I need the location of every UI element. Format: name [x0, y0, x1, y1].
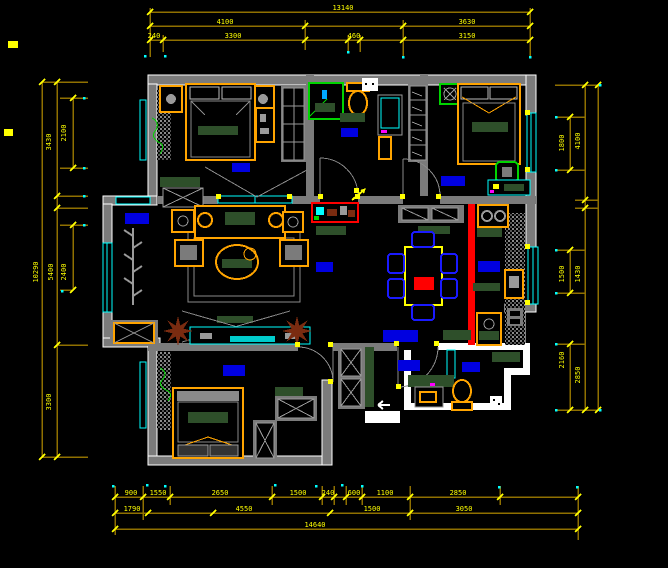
- dining-chair[interactable]: [388, 279, 404, 298]
- room-label-block[interactable]: [398, 360, 420, 371]
- dimension-endpoint-dot: [83, 195, 86, 198]
- dimension-text: 2850: [450, 489, 467, 497]
- pillow: [190, 87, 219, 99]
- dimension-endpoint-dot: [555, 343, 558, 346]
- vanity-cabinet[interactable]: [379, 137, 391, 159]
- dimension-text: 1800: [558, 135, 566, 152]
- vent-block: [362, 78, 378, 91]
- pillow: [490, 87, 517, 99]
- dimension-endpoint-dot: [83, 224, 86, 227]
- bed-runner: [198, 126, 238, 135]
- window-bathroom2[interactable]: [447, 350, 455, 378]
- side-table-left[interactable]: [172, 210, 194, 232]
- dimension-text: 1790: [124, 505, 141, 513]
- dining-chair[interactable]: [388, 254, 404, 273]
- toilet-bowl[interactable]: [349, 91, 367, 115]
- shower-enclosure[interactable]: [309, 83, 343, 119]
- floor-plan-drawing: 1314041003630240330046031509001550265015…: [0, 0, 668, 568]
- door-hinge-mark: [525, 244, 530, 249]
- headboard: [177, 391, 239, 401]
- window-living-top[interactable]: [116, 197, 150, 204]
- door-hinge-mark: [295, 342, 300, 347]
- dimension-text: 3430: [45, 134, 53, 151]
- dimension-text: 4100: [217, 18, 234, 26]
- door-hinge-mark: [394, 341, 399, 346]
- dimension-text: 3300: [45, 394, 53, 411]
- dimension-endpoint-dot: [599, 84, 602, 87]
- room-label-block[interactable]: [383, 330, 418, 342]
- door-hinge-mark: [396, 384, 401, 389]
- room-label-block[interactable]: [316, 262, 333, 272]
- door-hinge-mark: [525, 300, 530, 305]
- margin-mark: [4, 129, 13, 136]
- dimension-endpoint-dot: [599, 409, 602, 412]
- dimension-endpoint-dot: [576, 486, 579, 489]
- dimension-text: 4100: [574, 133, 582, 150]
- dimension-endpoint-dot: [347, 51, 350, 54]
- dimension-text: 4550: [236, 505, 253, 513]
- dimension-text: 900: [125, 489, 138, 497]
- room-label-block[interactable]: [478, 261, 500, 272]
- dimension-endpoint-dot: [555, 249, 558, 252]
- dimension-text: 3050: [456, 505, 473, 513]
- dimension-text: 13140: [332, 4, 353, 12]
- potted-plant-right[interactable]: [282, 316, 312, 346]
- dimension-text: 240: [148, 32, 161, 40]
- dimension-text: 1550: [150, 489, 167, 497]
- dining-chair[interactable]: [412, 305, 434, 320]
- door-hinge-mark: [436, 194, 441, 199]
- footboard-drawer[interactable]: [210, 445, 238, 456]
- dimension-endpoint-dot: [83, 167, 86, 170]
- margin-mark: [8, 41, 18, 48]
- wall-left-bedroom3[interactable]: [148, 345, 157, 465]
- room-label-block[interactable]: [341, 128, 358, 137]
- kitchen-red-partition[interactable]: [468, 204, 475, 345]
- dimension-text: 460: [348, 32, 361, 40]
- door-hinge-mark: [525, 167, 530, 172]
- room-label-block[interactable]: [232, 163, 250, 172]
- bath-mat: [340, 113, 365, 122]
- dimension-text: 2650: [212, 489, 229, 497]
- pillow: [461, 87, 488, 99]
- console-top: [160, 177, 200, 187]
- television[interactable]: [230, 336, 275, 342]
- dimension-text: 2850: [574, 367, 582, 384]
- dimension-text: 240: [322, 489, 335, 497]
- dimension-text: 2400: [60, 264, 68, 281]
- door-hinge-mark: [328, 342, 333, 347]
- door-hinge-mark: [287, 194, 292, 199]
- dimension-text: 600: [348, 489, 361, 497]
- dimension-endpoint-dot: [315, 485, 318, 488]
- potted-plant-left[interactable]: [163, 316, 193, 346]
- dimension-endpoint-dot: [164, 485, 167, 488]
- dimension-endpoint-dot: [164, 55, 167, 58]
- dimension-text: 1500: [290, 489, 307, 497]
- shoe-cabinet-top: [365, 347, 374, 407]
- dimension-endpoint-dot: [555, 409, 558, 412]
- toilet-bowl[interactable]: [453, 380, 471, 402]
- table-centerpiece: [414, 277, 434, 290]
- dimension-text: 3630: [459, 18, 476, 26]
- passage-counter: [443, 330, 471, 340]
- dimension-text: 14640: [304, 521, 325, 529]
- dimension-endpoint-dot: [555, 116, 558, 119]
- tv-rug: [217, 316, 253, 323]
- cad-viewport[interactable]: 1314041003630240330046031509001550265015…: [0, 0, 668, 568]
- dimension-endpoint-dot: [146, 484, 149, 487]
- dimension-text: 1430: [574, 266, 582, 283]
- dimension-text: 1100: [377, 489, 394, 497]
- dimension-text: 10290: [32, 261, 40, 282]
- dimension-endpoint-dot: [274, 484, 277, 487]
- counter-green: [492, 352, 520, 362]
- dimension-endpoint-dot: [83, 97, 86, 100]
- window-bedroom1[interactable]: [140, 100, 146, 160]
- wall-living-left-a[interactable]: [103, 204, 112, 248]
- dimension-text: 5400: [47, 264, 55, 281]
- toilet-tank[interactable]: [452, 402, 472, 410]
- dining-chair[interactable]: [412, 232, 434, 247]
- dimension-endpoint-dot: [402, 56, 405, 59]
- side-table-right[interactable]: [283, 212, 303, 232]
- dimension-text: 2100: [60, 125, 68, 142]
- dimension-text: 2160: [558, 352, 566, 369]
- door-hinge-mark: [318, 194, 323, 199]
- dimension-endpoint-dot: [555, 169, 558, 172]
- wall-right-upper[interactable]: [526, 75, 536, 115]
- dimension-endpoint-dot: [341, 484, 344, 487]
- dimension-text: 3150: [459, 32, 476, 40]
- dimension-endpoint-dot: [498, 486, 501, 489]
- counter-green: [477, 228, 502, 237]
- bed-runner: [188, 412, 228, 423]
- bed-runner: [472, 122, 508, 132]
- dimension-text: 3300: [225, 32, 242, 40]
- floor-drain: [490, 396, 502, 408]
- door-hinge-mark: [400, 194, 405, 199]
- entry-step-block: [365, 411, 400, 423]
- dimension-endpoint-dot: [144, 55, 147, 58]
- dimension-endpoint-dot: [61, 290, 64, 293]
- door-hinge-mark: [434, 341, 439, 346]
- dimension-text: 1500: [364, 505, 381, 513]
- dresser[interactable]: [256, 108, 274, 142]
- dining-chair[interactable]: [441, 254, 457, 273]
- room-label-block[interactable]: [441, 176, 465, 186]
- room-label-block[interactable]: [223, 365, 245, 376]
- door-hinge-mark: [355, 194, 360, 199]
- vanity-mirror[interactable]: [381, 98, 399, 128]
- door-hinge-mark: [525, 110, 530, 115]
- door-hinge-mark: [328, 379, 333, 384]
- entry-mat: [316, 226, 346, 235]
- room-label-block[interactable]: [125, 213, 149, 224]
- dimension-endpoint-dot: [555, 292, 558, 295]
- door-hinge-mark: [216, 194, 221, 199]
- dimension-endpoint-dot: [112, 485, 115, 488]
- window-bedroom3[interactable]: [140, 362, 146, 428]
- counter-green: [473, 283, 500, 291]
- dimension-text: 1500: [558, 266, 566, 283]
- room-label-block[interactable]: [462, 362, 480, 372]
- wall-right-bedroom3[interactable]: [322, 380, 332, 465]
- door-hinge-mark: [354, 188, 359, 193]
- footboard-drawer[interactable]: [178, 445, 208, 456]
- dining-table[interactable]: [405, 247, 442, 305]
- dining-chair[interactable]: [441, 279, 457, 298]
- pillow: [222, 87, 251, 99]
- dimension-endpoint-dot: [529, 56, 532, 59]
- dimension-endpoint-dot: [361, 485, 364, 488]
